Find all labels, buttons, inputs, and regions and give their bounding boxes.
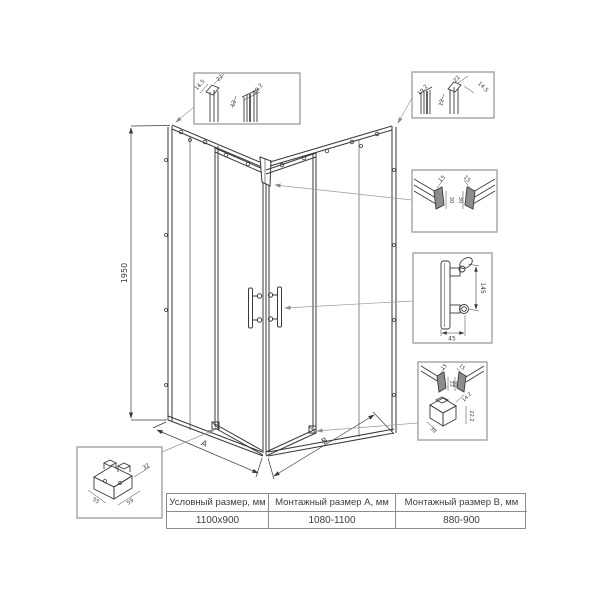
dimension-b: B bbox=[268, 412, 394, 479]
rail-right-depth: 30 bbox=[457, 197, 463, 204]
spec-header-mount-b: Монтажный размер В, мм bbox=[396, 494, 527, 512]
spec-value-mount-a: 1080-1100 bbox=[269, 512, 396, 528]
spec-table: Условный размер, мм Монтажный размер А, … bbox=[166, 493, 526, 529]
left-panel-screws bbox=[165, 130, 207, 386]
callout-bottom-corner: 15 22 15 22 14.2 22.2 30 bbox=[418, 362, 487, 440]
callout-door-handle: 145 45 bbox=[413, 253, 492, 343]
callout-top-right-profiles: 19.2 12 22 14.5 bbox=[412, 72, 494, 118]
callout-top-left-profiles: 14.5 22 12 19.2 bbox=[194, 73, 300, 124]
corner-post bbox=[260, 157, 271, 455]
shower-enclosure-drawing: 1950 A B 14.5 2 bbox=[0, 0, 600, 600]
left-sliding-door bbox=[212, 146, 263, 455]
spec-value-mount-b: 880-900 bbox=[396, 512, 527, 528]
spec-header-mount-a: Монтажный размер А, мм bbox=[269, 494, 396, 512]
dim-a-label: A bbox=[200, 438, 209, 449]
handle-width-dim: 45 bbox=[448, 336, 456, 343]
right-door-handle bbox=[268, 287, 281, 327]
left-door-handle bbox=[249, 288, 262, 328]
spec-header-nominal: Условный размер, мм bbox=[167, 494, 269, 512]
dimension-height: 1950 bbox=[120, 126, 170, 421]
callout-corner-rails: 15 30 15 30 bbox=[412, 170, 497, 232]
handle-length-dim: 145 bbox=[479, 282, 486, 294]
spec-value-nominal: 1100x900 bbox=[167, 512, 269, 528]
corner-cap bbox=[260, 157, 271, 186]
callout-wall-bracket: 55 59 32 bbox=[77, 447, 162, 518]
right-panel-screws bbox=[325, 132, 395, 396]
height-dim-label: 1950 bbox=[120, 263, 129, 283]
rail-left-depth: 30 bbox=[448, 197, 454, 204]
callout-leaders bbox=[162, 96, 418, 452]
right-sliding-door bbox=[266, 152, 316, 456]
bottom-rail-right-depth: 22 bbox=[451, 381, 457, 387]
right-fixed-panel bbox=[268, 126, 396, 456]
block-dim-22-2: 22.2 bbox=[468, 410, 474, 421]
main-enclosure-view bbox=[165, 125, 397, 456]
